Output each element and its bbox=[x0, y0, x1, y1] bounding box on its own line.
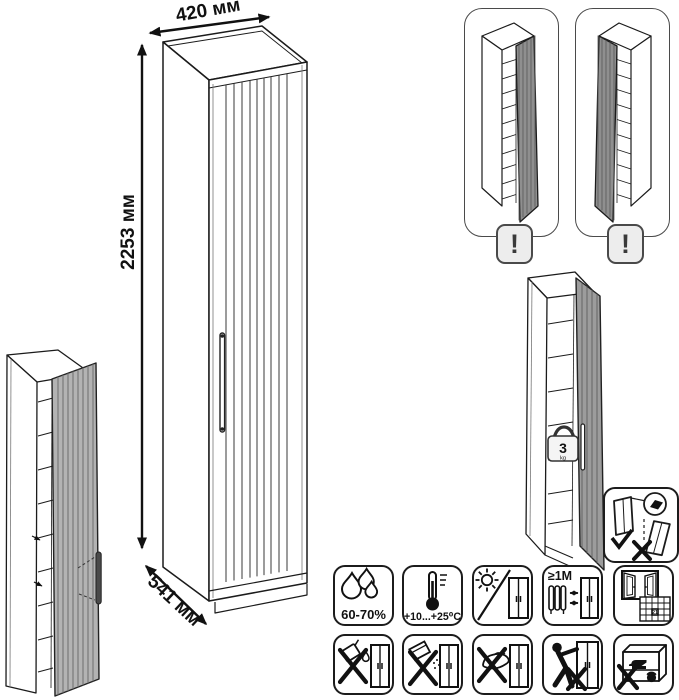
care-icon-temperature: +10...+25⁰C bbox=[402, 565, 463, 626]
distance-arrows-icon bbox=[570, 593, 578, 603]
x-mark bbox=[410, 652, 436, 684]
care-icon-no-wet-cleaning bbox=[472, 634, 533, 695]
sun-icon bbox=[476, 569, 499, 592]
hinge-left-wardrobe bbox=[466, 10, 556, 232]
care-icon-no-abrasives bbox=[402, 634, 463, 695]
cabinet-pictogram bbox=[440, 645, 458, 687]
cabinet-pictogram bbox=[510, 645, 528, 687]
shelves bbox=[548, 320, 573, 524]
shelf-load-badge: 3 kg bbox=[548, 427, 578, 462]
radiator-icon bbox=[549, 586, 566, 614]
instruction-sheet: { "sheet": { "dimensions": { "width_labe… bbox=[0, 0, 679, 700]
shelf-load-unit: kg bbox=[560, 456, 566, 462]
care-icon-humidity: 60-70% bbox=[333, 565, 394, 626]
hinge-option-left-panel bbox=[464, 8, 559, 237]
kettlebell-icon bbox=[647, 673, 656, 682]
height-dimension-label: 2253 мм bbox=[118, 194, 139, 270]
warning-exclamation-icon: ! bbox=[607, 224, 644, 264]
care-icon-ventilation: 21 bbox=[613, 565, 674, 626]
thermometer-icon bbox=[426, 572, 447, 611]
calendar-day: 21 bbox=[652, 610, 658, 616]
warning-mark: ! bbox=[621, 231, 630, 258]
person-icon bbox=[552, 643, 577, 686]
hinge-right-wardrobe bbox=[577, 10, 667, 232]
main-wardrobe-drawing: 420 мм 2253 мм 541 мм bbox=[95, 0, 345, 668]
calendar-icon: 21 bbox=[640, 597, 670, 621]
wardrobe-body bbox=[163, 26, 307, 613]
door-handle bbox=[220, 333, 225, 432]
open-door bbox=[52, 363, 99, 696]
anti-tip-warning-icon bbox=[603, 487, 679, 563]
cabinet-pictogram bbox=[371, 645, 389, 687]
care-icon-no-liquids bbox=[333, 634, 394, 695]
care-icon-no-direct-sunlight bbox=[472, 565, 533, 626]
temperature-label: +10...+25⁰C bbox=[404, 611, 461, 623]
open-door bbox=[576, 278, 604, 570]
door-handle bbox=[581, 424, 585, 470]
cabinet-pictogram bbox=[581, 578, 598, 618]
care-icon-heat-distance: ≥1M bbox=[542, 565, 603, 626]
shelf-load-value: 3 bbox=[559, 440, 567, 456]
open-window-icon bbox=[622, 571, 658, 599]
care-icon-no-overloading bbox=[613, 634, 674, 695]
hinge-option-right-panel bbox=[575, 8, 670, 237]
water-drops-icon bbox=[342, 569, 377, 599]
shelves bbox=[38, 398, 53, 672]
warning-exclamation-icon: ! bbox=[496, 224, 533, 264]
left-wardrobe-drawing bbox=[0, 336, 130, 700]
distance-label: ≥1M bbox=[548, 569, 572, 583]
care-icon-no-dragging bbox=[542, 634, 603, 695]
warning-mark: ! bbox=[510, 231, 519, 258]
cabinet-pictogram bbox=[509, 578, 528, 618]
humidity-label: 60-70% bbox=[341, 607, 386, 622]
